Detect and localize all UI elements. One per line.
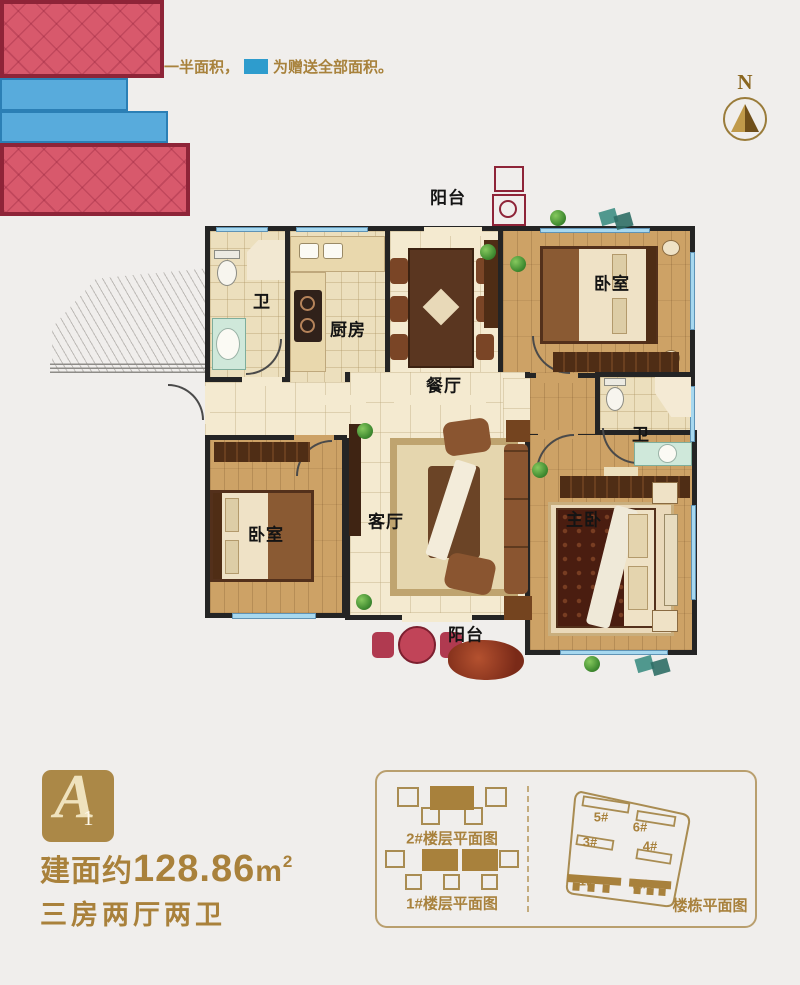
armchair [442,417,492,457]
sink [658,444,677,463]
toilet-bowl [606,387,624,411]
brochure-page: 备注： 为赠送一半面积， 为赠送全部面积。 N [0,0,800,985]
nightstand [652,482,678,504]
pillow [225,540,239,574]
site-plan-label: 楼栋平面图 [672,895,747,916]
room-label-balcony-bottom: 阳台 [448,621,484,646]
room-label-kitchen: 厨房 [330,316,366,341]
area-prefix: 建面约 [40,855,133,888]
balcony-deco [650,658,670,676]
plant [532,462,548,478]
window [690,252,695,330]
window [216,227,268,232]
washing-machine [494,166,524,192]
side-table [504,596,532,620]
kitchen-sink [323,243,343,259]
room-label-bedroom-topright: 卧室 [594,270,630,295]
nightstand [652,610,678,632]
site-building-label-5: 5# [594,810,608,825]
area-line: 建面约128.86m2 [40,846,293,891]
window [232,613,316,619]
stove-burner [300,296,315,311]
room-label-bathroom-left: 卫 [253,288,271,313]
window [691,505,696,600]
plant [584,656,600,672]
site-building-label-2: 2# [633,877,647,892]
pillow [628,514,648,558]
neighbor-wall-lines [50,363,208,373]
room-label-living: 客厅 [368,508,404,533]
layout-line: 三房两厅两卫 [40,893,226,932]
kitchen-sink [299,243,319,259]
stove-burner [300,318,315,333]
floor2-mini-diagram [392,782,512,830]
floor2-label: 2#楼层平面图 [406,828,498,849]
site-building-label-3: 3# [583,835,597,850]
floor1-label: 1#楼层平面图 [406,893,498,914]
balcony-table [398,626,436,664]
pillow [628,566,648,610]
window [540,228,650,233]
badge-digit: 1 [83,806,94,831]
pillow [225,498,239,532]
window [560,650,668,655]
balcony-topright-gift-full [0,78,128,111]
tv-cabinet [349,424,361,536]
headboard [646,246,656,344]
plant [356,594,372,610]
area-superscript: 2 [283,852,293,871]
floor1-mini-diagram [382,847,522,895]
plant [480,244,496,260]
wardrobe [214,442,310,462]
toilet-bowl [217,260,237,286]
room-label-balcony-top: 阳台 [430,184,466,209]
room-label-bathroom-right: 卫 [632,421,650,446]
bay-bottom-gift-full [0,111,168,143]
side-table [506,420,530,442]
room-label-bedroom-left: 卧室 [248,521,284,546]
nightstand [662,240,680,256]
pillow [612,298,627,334]
hallway-floor [205,382,350,438]
site-building-label-6: 6# [633,820,647,835]
wardrobe [553,352,679,372]
plant [357,423,373,439]
unit-type-badge: A 1 [42,770,114,842]
dining-chair [390,334,408,360]
plant [550,210,566,226]
stairwell-hatch-area [52,266,208,372]
balcony-chair [372,632,394,658]
site-building-label-1: 1# [579,874,593,889]
balcony-top-gift-half [0,0,164,78]
toilet [214,250,240,259]
sofa [504,444,528,594]
bed-blanket [543,249,579,341]
dining-chair [390,258,408,284]
window [296,227,368,232]
dining-chair [476,334,494,360]
dining-chair [390,296,408,322]
balcony-bottom-gift-half [0,143,190,216]
headboard [213,493,222,579]
plant [510,256,526,272]
area-value: 128.86 [133,848,255,890]
washing-machine-drum [499,200,517,218]
area-unit: m [255,855,283,888]
master-corridor-floor [530,378,595,434]
sink [216,328,240,360]
room-label-master-bedroom: 主卧 [566,506,602,531]
flower-bed [448,640,524,680]
toilet [604,378,626,386]
entry-door-arc [168,384,204,420]
bench [664,514,678,606]
room-label-dining: 餐厅 [426,372,462,397]
panel-divider [527,786,529,912]
site-building-label-4: 4# [643,839,657,854]
